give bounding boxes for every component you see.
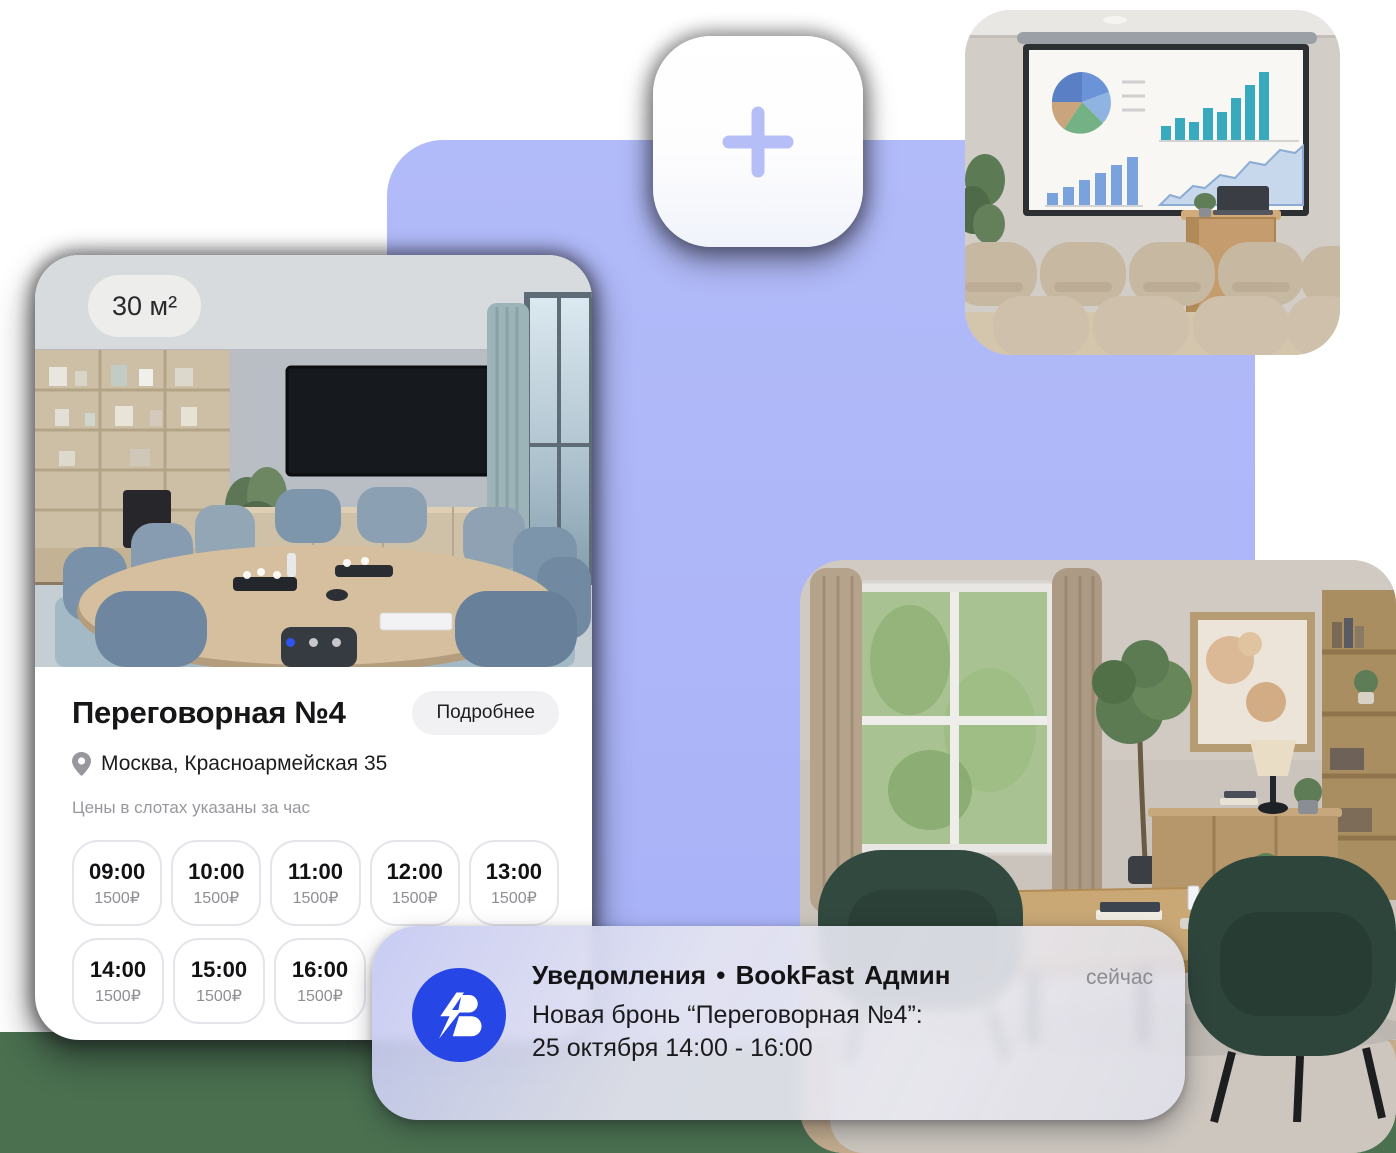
slot-time: 14:00 [90,957,146,983]
room-location: Москва, Красноармейская 35 [101,752,387,776]
room-title: Переговорная №4 [72,695,346,731]
time-slot[interactable]: 13:00 1500₽ [469,840,559,926]
carousel-dot-2[interactable] [309,638,318,647]
slot-price: 1500₽ [392,888,438,908]
notification-body-line2: 25 октября 14:00 - 16:00 [532,1032,1035,1065]
carousel-dot-1[interactable] [286,638,295,647]
slot-price: 1500₽ [94,888,140,908]
time-slot[interactable]: 16:00 1500₽ [274,938,366,1024]
time-slot[interactable]: 14:00 1500₽ [72,938,164,1024]
slot-time: 11:00 [288,859,343,885]
time-slot[interactable]: 09:00 1500₽ [72,840,162,926]
room-card: 30 м² Переговорная №4 Подробнее Москва, … [35,255,592,1040]
time-slot[interactable]: 11:00 1500₽ [270,840,360,926]
slot-price: 1500₽ [95,986,141,1006]
slot-price: 1500₽ [297,986,343,1006]
slot-time: 13:00 [486,859,542,885]
time-slot[interactable]: 12:00 1500₽ [370,840,460,926]
time-slot[interactable]: 15:00 1500₽ [173,938,265,1024]
notification-toast[interactable]: сейчас Уведомления • BookFast Админ Нова… [372,926,1185,1120]
slot-price: 1500₽ [196,986,242,1006]
meeting-room-photo: 30 м² [35,255,592,667]
add-button[interactable] [653,36,863,247]
notification-title: Уведомления • BookFast Админ [532,960,1035,991]
notification-body-line1: Новая бронь “Переговорная №4”: [532,999,1035,1032]
notification-time: сейчас [1086,966,1153,990]
slot-price: 1500₽ [293,888,339,908]
slot-time: 09:00 [89,859,145,885]
time-slot[interactable]: 10:00 1500₽ [171,840,261,926]
price-note: Цены в слотах указаны за час [72,798,559,818]
area-badge: 30 м² [88,275,201,337]
location-pin-icon [72,752,91,776]
slot-time: 16:00 [292,957,348,983]
hero-composition: 30 м² Переговорная №4 Подробнее Москва, … [0,0,1396,1153]
carousel-dot-3[interactable] [332,638,341,647]
photo-carousel [35,638,592,647]
notification-body: Новая бронь “Переговорная №4”: 25 октябр… [532,999,1035,1065]
slot-time: 10:00 [188,859,244,885]
bookfast-logo-icon [412,968,506,1062]
slot-price: 1500₽ [193,888,239,908]
presentation-room-photo [965,10,1340,355]
slot-price: 1500₽ [491,888,537,908]
slot-time: 12:00 [387,859,443,885]
details-button[interactable]: Подробнее [412,691,559,735]
slot-time: 15:00 [191,957,247,983]
plus-icon [721,105,795,179]
